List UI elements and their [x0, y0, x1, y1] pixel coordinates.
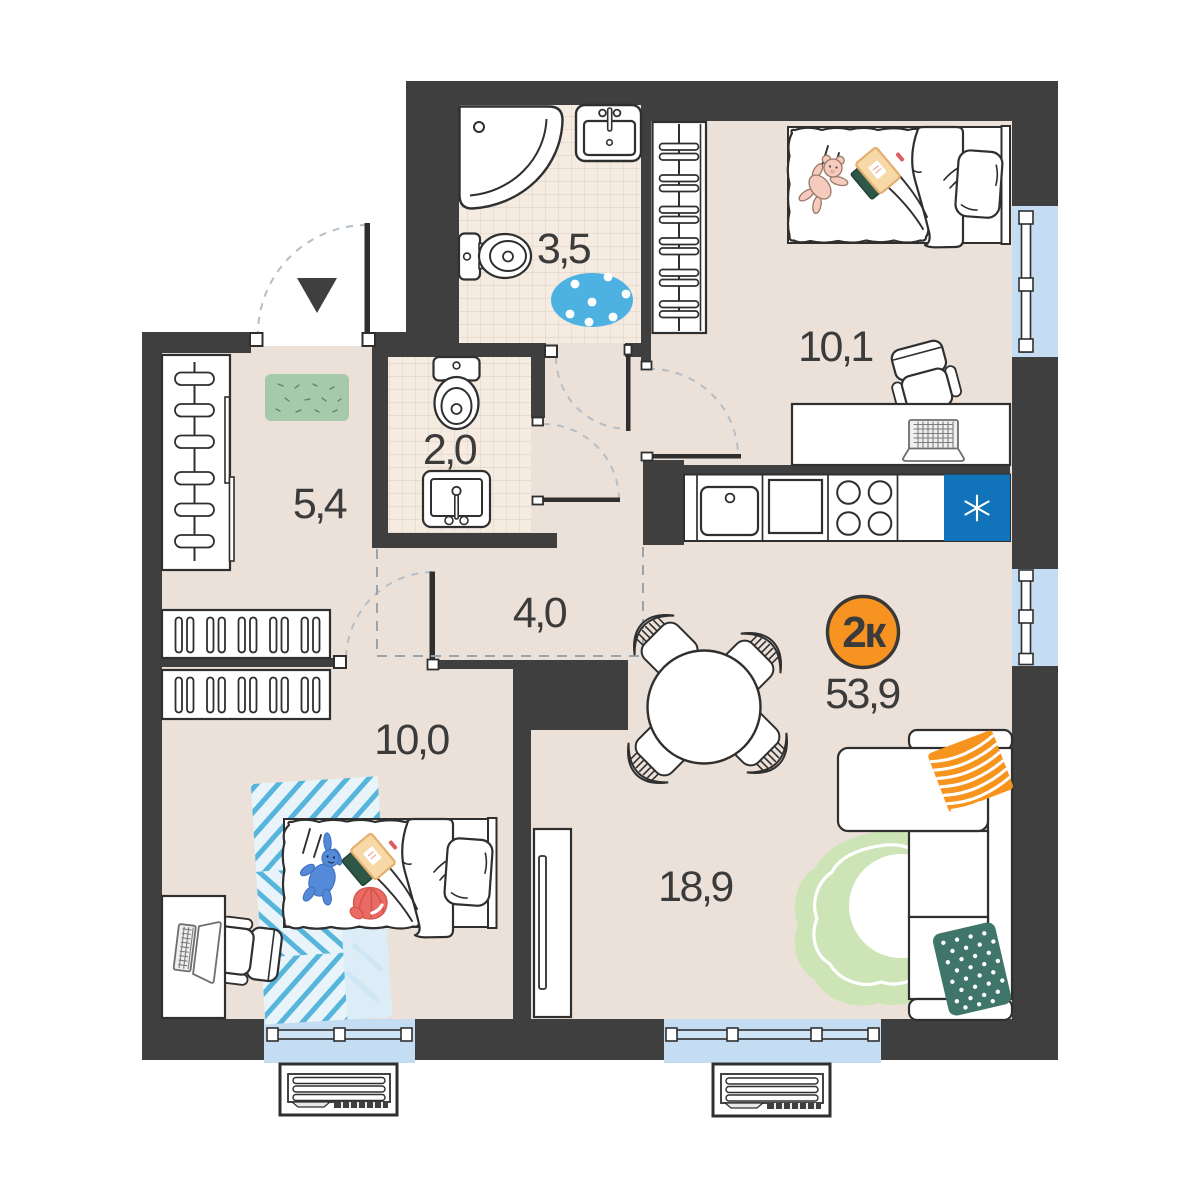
svg-text:3,5: 3,5 — [537, 225, 591, 273]
svg-text:4,0: 4,0 — [513, 589, 567, 637]
svg-text:10,1: 10,1 — [798, 323, 872, 371]
svg-text:5,4: 5,4 — [293, 480, 347, 528]
svg-text:2к: 2к — [842, 608, 887, 657]
svg-text:18,9: 18,9 — [658, 863, 732, 911]
svg-text:2,0: 2,0 — [423, 426, 477, 474]
svg-text:10,0: 10,0 — [374, 716, 449, 764]
svg-text:53,9: 53,9 — [825, 670, 899, 718]
